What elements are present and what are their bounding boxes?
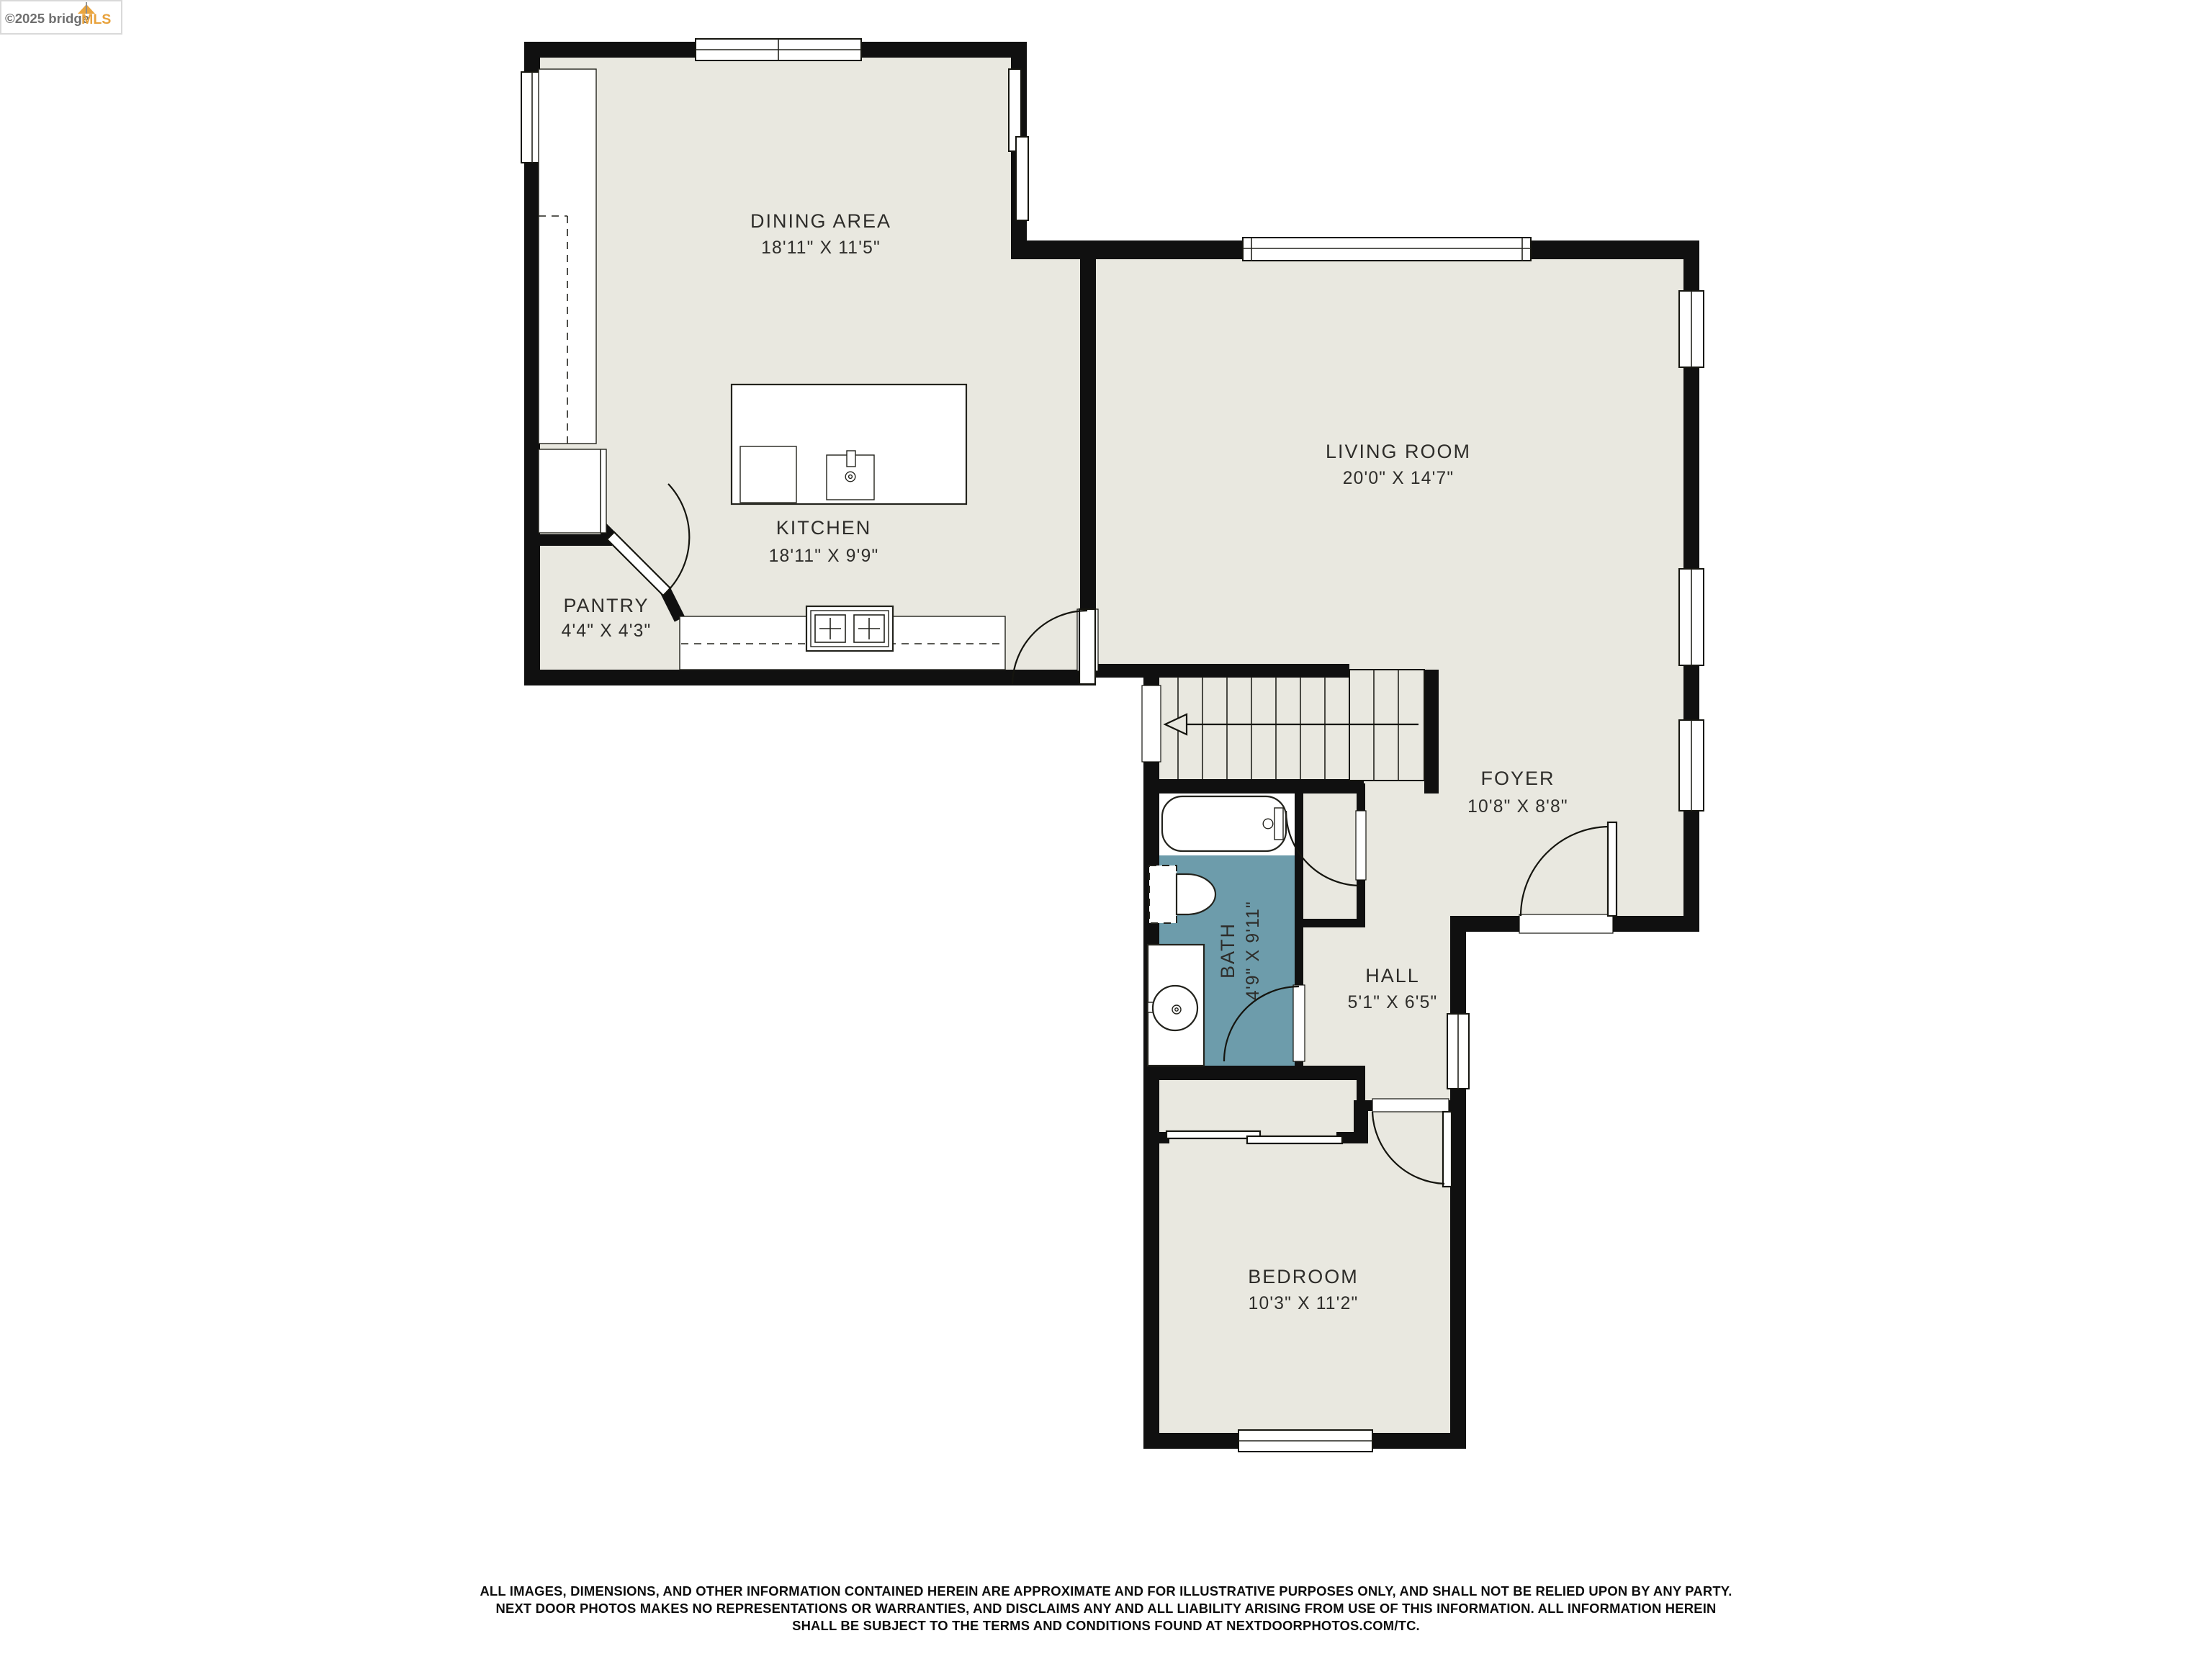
disclaimer: ALL IMAGES, DIMENSIONS, AND OTHER INFORM… <box>480 1583 1732 1633</box>
mls-logo: ©2025 bridge MLS <box>1 1 122 34</box>
window-bedroom-bottom <box>1238 1430 1372 1452</box>
window-living-right-2 <box>1679 569 1704 665</box>
kitchen-dims: 18'11" X 9'9" <box>769 547 879 566</box>
wall-kitchen-living <box>1080 259 1096 611</box>
vanity-sink-icon <box>1148 945 1204 1066</box>
refrigerator-icon <box>539 449 606 533</box>
wall-bedroom-door-right <box>1449 1100 1466 1111</box>
island-sink-icon <box>827 451 874 500</box>
window-foyer-right <box>1679 720 1704 811</box>
window-dining-top <box>696 39 861 60</box>
floor-plan-canvas: DINING AREA 18'11" X 11'5" KITCHEN 18'11… <box>0 0 2212 1659</box>
window-living-right-1 <box>1679 291 1704 367</box>
hall-dims: 5'1" X 6'5" <box>1348 993 1438 1012</box>
pantry-label: PANTRY <box>563 595 649 616</box>
disclaimer-line-3: SHALL BE SUBJECT TO THE TERMS AND CONDIT… <box>792 1618 1420 1633</box>
wall-stairs-top <box>1087 664 1349 678</box>
wall-stairs-right <box>1424 670 1439 793</box>
kitchen-island <box>732 385 966 504</box>
wall-hall-bedroom-right <box>1450 916 1466 1449</box>
foyer-dims: 10'8" X 8'8" <box>1467 797 1568 817</box>
wall-bedroom-door-left <box>1354 1100 1372 1111</box>
bath-label: BATH <box>1217 922 1238 979</box>
living-dims: 20'0" X 14'7" <box>1343 469 1455 488</box>
wall-kitchen-bottom <box>524 670 1096 685</box>
logo-copyright: ©2025 bridge <box>5 11 89 26</box>
wall-stairs-bottom <box>1143 779 1364 793</box>
stove-icon <box>806 606 893 651</box>
wall-pantry-top <box>524 534 612 546</box>
wall-understair-bottom <box>1302 919 1365 927</box>
disclaimer-line-2: NEXT DOOR PHOTOS MAKES NO REPRESENTATION… <box>496 1601 1717 1616</box>
hall-label: HALL <box>1365 965 1420 986</box>
dining-kitchen-floor <box>540 58 1080 671</box>
living-label: LIVING ROOM <box>1326 441 1471 462</box>
dining-dims: 18'11" X 11'5" <box>761 238 881 258</box>
wall-understair-right-upper <box>1357 783 1365 811</box>
island-cabinet <box>740 446 796 503</box>
floor-plan-page: DINING AREA 18'11" X 11'5" KITCHEN 18'11… <box>0 0 2212 1659</box>
logo-mls: MLS <box>81 12 111 27</box>
floors <box>540 58 1683 1440</box>
bathtub-icon <box>1162 796 1286 851</box>
disclaimer-line-1: ALL IMAGES, DIMENSIONS, AND OTHER INFORM… <box>480 1583 1732 1599</box>
wall-bath-bottom <box>1143 1066 1365 1080</box>
dining-label: DINING AREA <box>750 210 891 232</box>
left-counter-run <box>539 69 606 533</box>
bedroom-dims: 10'3" X 11'2" <box>1249 1294 1359 1313</box>
window-stairs-left <box>1142 685 1161 762</box>
foyer-label: FOYER <box>1480 768 1555 789</box>
window-living-top <box>1243 238 1531 261</box>
wall-bath-right-upper <box>1295 793 1303 988</box>
bath-dims: 4'9" X 9'11" <box>1244 901 1263 1000</box>
kitchen-label: KITCHEN <box>776 517 872 539</box>
bedroom-label: BEDROOM <box>1248 1266 1359 1287</box>
window-hall-right <box>1447 1014 1469 1089</box>
pantry-dims: 4'4" X 4'3" <box>562 621 652 641</box>
